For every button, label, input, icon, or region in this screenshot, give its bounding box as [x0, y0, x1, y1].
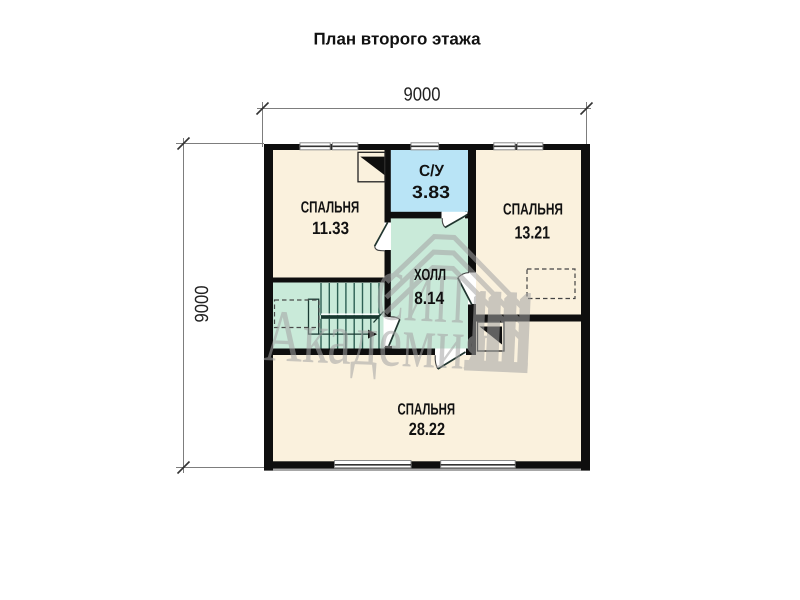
svg-text:СПАЛЬНЯ: СПАЛЬНЯ: [301, 198, 360, 216]
svg-text:План второго этажа: План второго этажа: [314, 29, 482, 48]
svg-text:8.14: 8.14: [414, 288, 444, 308]
svg-text:9000: 9000: [192, 286, 213, 323]
svg-text:11.33: 11.33: [312, 218, 349, 238]
svg-text:Академия: Академия: [263, 295, 491, 387]
svg-text:28.22: 28.22: [409, 419, 445, 439]
svg-text:СПАЛЬНЯ: СПАЛЬНЯ: [503, 201, 563, 219]
svg-text:С/У: С/У: [419, 162, 445, 180]
svg-text:13.21: 13.21: [515, 223, 551, 243]
svg-text:ХОЛЛ: ХОЛЛ: [414, 266, 446, 284]
svg-text:СПАЛЬНЯ: СПАЛЬНЯ: [398, 400, 456, 418]
svg-text:9000: 9000: [404, 85, 441, 106]
svg-text:3.83: 3.83: [412, 182, 450, 202]
